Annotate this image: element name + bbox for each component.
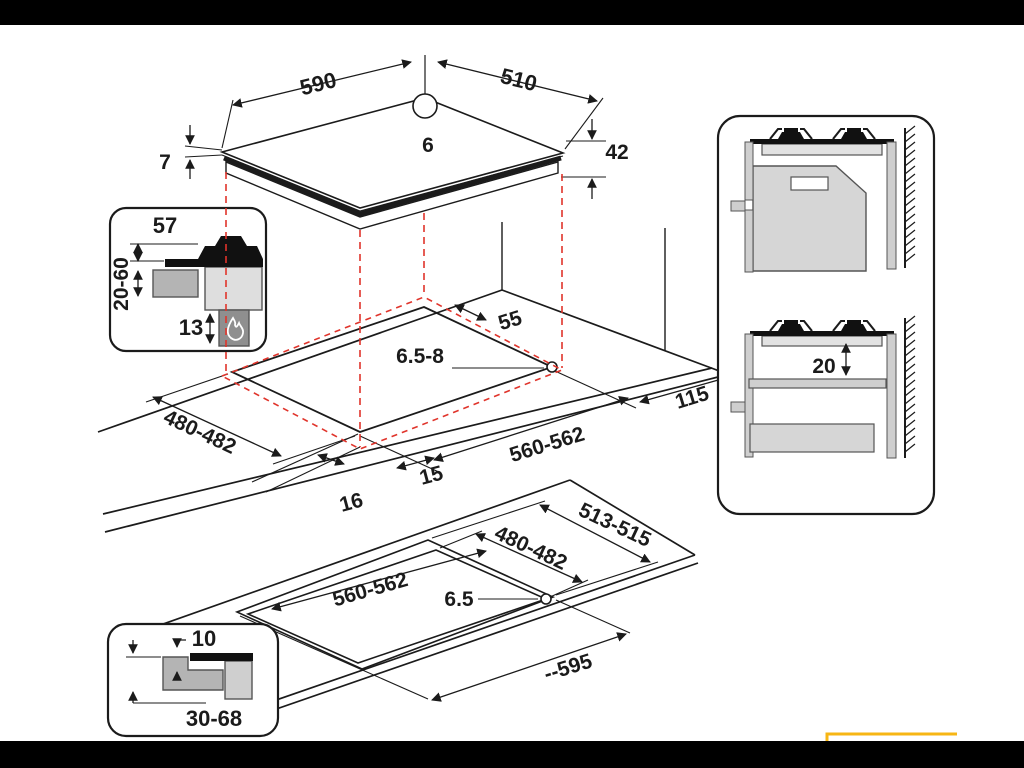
dim-corner-hole: 6.5-8 — [396, 345, 444, 368]
dim-rear-clearance: 55 — [496, 306, 525, 335]
hob-glass-side — [750, 331, 894, 336]
ext-line — [252, 434, 360, 492]
worktop-front-face — [105, 377, 718, 532]
dim-worktop-thickness: 30-68 — [186, 706, 242, 731]
oven-vent — [791, 177, 828, 190]
drawer — [750, 424, 874, 452]
separator-shelf — [749, 379, 886, 388]
dim-burner-hole: 6 — [422, 134, 434, 157]
burner-body — [205, 267, 262, 310]
dim-cutout-depth: 480-482 — [491, 521, 571, 574]
dim-shelf-clearance: 20 — [812, 355, 835, 378]
wall-side-views-panel: 20 — [718, 116, 934, 514]
dim-body-height: 42 — [605, 141, 628, 164]
ext-line — [222, 100, 233, 148]
burner-hole-mark — [413, 94, 437, 118]
cabinet-side — [745, 210, 753, 272]
ext-line — [185, 146, 222, 157]
dim-glass-thickness: 7 — [159, 151, 171, 174]
dim-cutout-width: 560-562 — [507, 423, 587, 468]
ext-line — [240, 600, 630, 699]
hob-glass-section — [165, 259, 263, 267]
dim-line-rear-clearance — [455, 305, 486, 320]
dim-height-above: 57 — [153, 213, 177, 238]
dim-recess-width: --595 — [541, 650, 595, 686]
gas-connection-stub — [731, 201, 745, 211]
worktop-section — [153, 270, 198, 297]
flush-section-inset: 10 30-68 — [108, 624, 278, 736]
ext-line — [561, 141, 606, 177]
hob-top-view: 590 510 6 42 7 — [159, 55, 629, 229]
hob-glass-side — [750, 139, 894, 144]
dim-cutout-depth: 480-482 — [160, 405, 240, 458]
hob-body-section — [225, 661, 252, 699]
dim-rebate-depth: 10 — [192, 626, 216, 651]
dim-corner-hole: 6.5 — [444, 588, 474, 611]
cabinet-side — [745, 142, 753, 200]
corner-hole — [541, 594, 551, 604]
burner-cap — [198, 246, 263, 259]
dim-hob-depth: 510 — [498, 63, 540, 96]
hob-body-side — [762, 144, 882, 155]
worktop-front-edge — [230, 555, 695, 716]
cabinet-side — [887, 334, 896, 458]
letterbox-bottom — [0, 741, 1024, 768]
dim-hob-width: 590 — [297, 67, 339, 100]
gas-connection-stub — [731, 402, 745, 412]
dim-front-offset: 15 — [417, 462, 446, 490]
letterbox-top — [0, 0, 1024, 25]
dim-cutout-width: 560-562 — [330, 568, 410, 611]
hob-glass-section — [190, 653, 253, 661]
dim-worktop-thickness: 20-60 — [110, 257, 133, 311]
hob-body-side — [762, 336, 882, 346]
gas-outlet-box — [219, 310, 249, 346]
cabinet-side — [887, 142, 896, 269]
dim-front-edge: 16 — [337, 489, 366, 517]
dim-bottom-clearance: 13 — [179, 315, 203, 340]
hob-installation-diagram: 590 510 6 42 7 55 6.5-8 480-482 560-562 … — [0, 0, 1024, 768]
dim-line-recess-width — [432, 634, 626, 700]
burner-section-inset: 57 20-60 13 — [110, 208, 266, 351]
cutout-outline — [248, 550, 546, 663]
